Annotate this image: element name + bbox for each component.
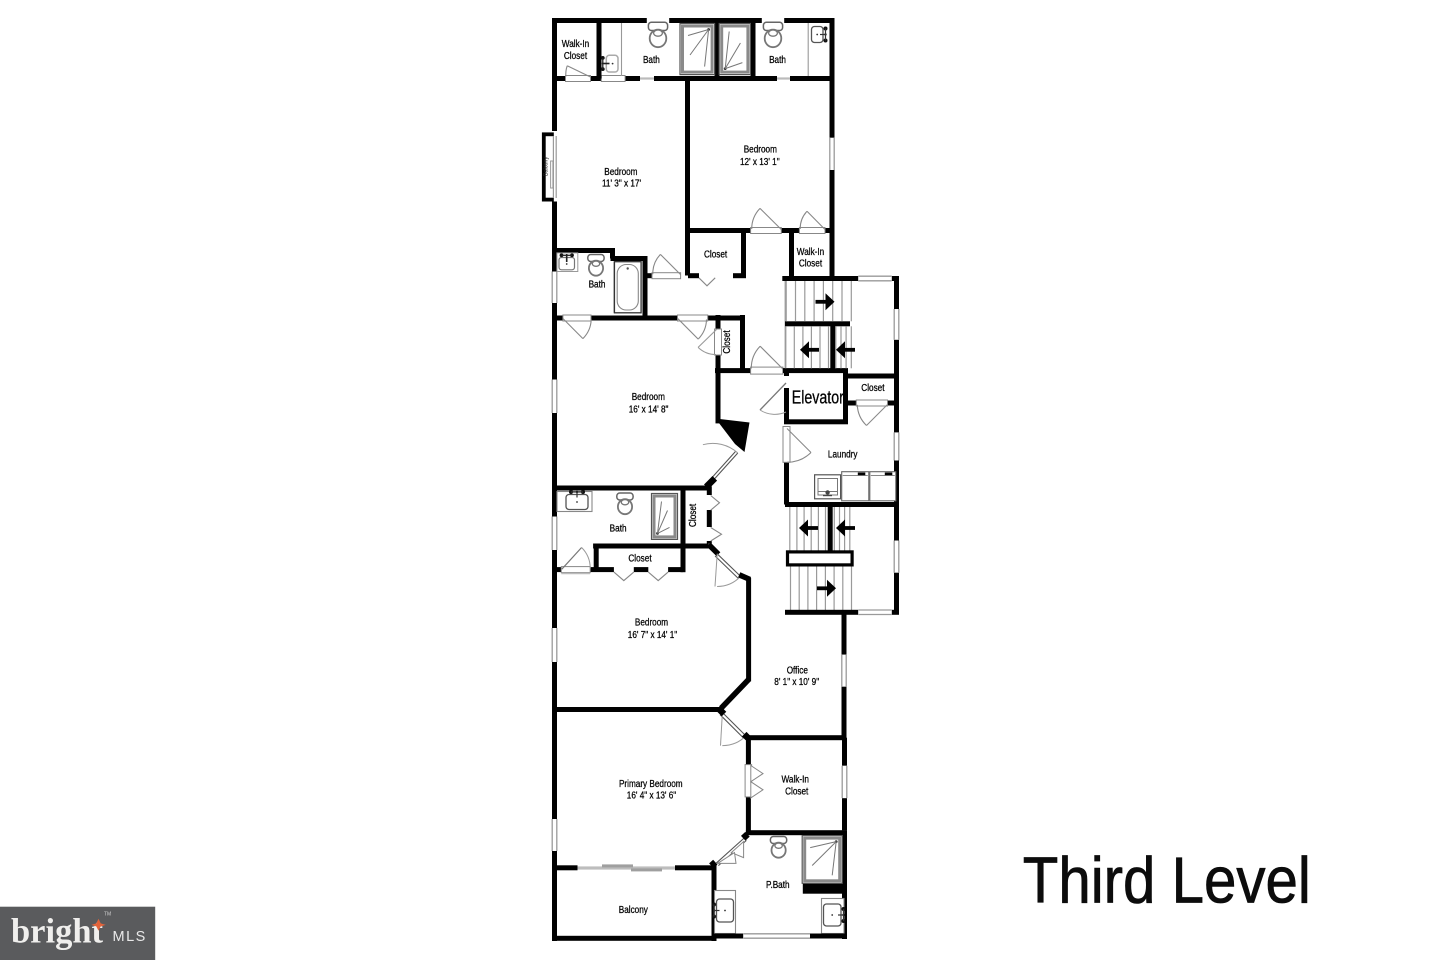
- svg-text:Closet: Closet: [721, 330, 732, 354]
- svg-text:Bath: Bath: [643, 54, 660, 65]
- svg-text:MLS: MLS: [113, 929, 147, 945]
- svg-text:TM: TM: [104, 912, 111, 918]
- svg-text:Balcony: Balcony: [543, 157, 549, 176]
- svg-text:Closet: Closet: [704, 249, 728, 260]
- svg-text:bright: bright: [11, 913, 104, 951]
- svg-text:Primary Bedroom: Primary Bedroom: [619, 778, 683, 789]
- svg-text:Closet: Closet: [628, 553, 652, 564]
- svg-text:Third Level: Third Level: [1023, 845, 1311, 917]
- svg-text:Closet: Closet: [861, 382, 885, 393]
- svg-text:Closet: Closet: [785, 786, 809, 797]
- svg-text:Closet: Closet: [687, 503, 698, 527]
- svg-text:Bath: Bath: [769, 54, 786, 65]
- svg-text:16' 4" x 13' 6": 16' 4" x 13' 6": [627, 790, 676, 801]
- svg-text:Walk-In: Walk-In: [781, 774, 808, 785]
- svg-text:Laundry: Laundry: [828, 449, 858, 460]
- svg-text:Elevator: Elevator: [792, 387, 844, 408]
- svg-text:Bath: Bath: [589, 279, 606, 290]
- svg-text:Closet: Closet: [564, 50, 588, 61]
- svg-text:Balcony: Balcony: [619, 904, 649, 915]
- svg-text:P.Bath: P.Bath: [766, 879, 790, 890]
- svg-text:Closet: Closet: [799, 258, 823, 269]
- svg-text:Walk-In: Walk-In: [562, 38, 589, 49]
- svg-text:11' 3" x 17': 11' 3" x 17': [602, 178, 641, 189]
- svg-text:16' 7" x 14' 1": 16' 7" x 14' 1": [628, 629, 677, 640]
- svg-text:Bedroom: Bedroom: [632, 391, 665, 402]
- svg-text:Walk-In: Walk-In: [797, 246, 824, 257]
- svg-text:Bedroom: Bedroom: [744, 144, 777, 155]
- svg-text:8' 1" x 10' 9": 8' 1" x 10' 9": [774, 676, 819, 687]
- svg-text:12' x 13' 1": 12' x 13' 1": [740, 156, 780, 167]
- svg-text:Office: Office: [787, 665, 808, 676]
- svg-text:16' x 14' 8": 16' x 14' 8": [629, 404, 669, 415]
- svg-text:Bedroom: Bedroom: [635, 617, 668, 628]
- svg-text:Bath: Bath: [610, 523, 627, 534]
- svg-text:Bedroom: Bedroom: [604, 166, 637, 177]
